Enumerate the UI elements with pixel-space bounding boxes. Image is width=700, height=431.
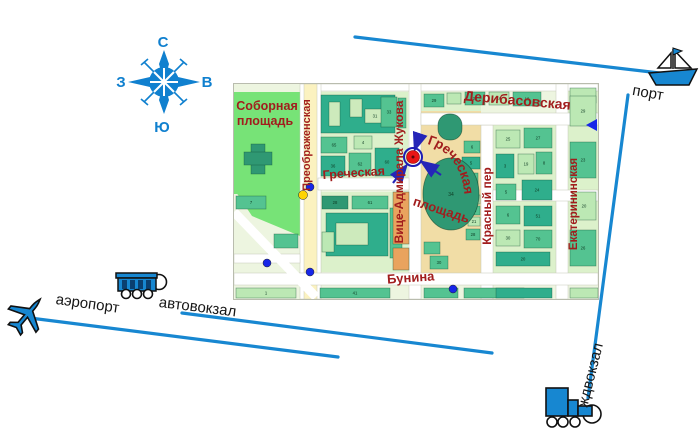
- transport-stop-dot: [449, 285, 457, 293]
- svg-text:27: 27: [536, 136, 541, 141]
- svg-text:28: 28: [333, 200, 338, 205]
- svg-text:30: 30: [437, 260, 442, 265]
- svg-text:29: 29: [581, 109, 586, 114]
- svg-text:23: 23: [581, 158, 586, 163]
- street-label: площадь: [237, 114, 294, 128]
- street-label: Красный пер: [480, 167, 494, 244]
- svg-text:34: 34: [448, 192, 454, 198]
- svg-text:61: 61: [368, 200, 373, 205]
- slide-canvas: С Ю З В 38313346536626028614216729221610…: [0, 0, 700, 431]
- compass-east-label: В: [202, 74, 213, 91]
- city-map: 3831334653662602861421672922161065441214…: [233, 83, 599, 300]
- svg-text:65: 65: [332, 143, 337, 148]
- transport-stop-dot: [263, 259, 271, 267]
- port-line: [355, 37, 668, 74]
- compass-south-label: Ю: [154, 119, 169, 136]
- plane-icon: [2, 292, 58, 338]
- svg-text:41: 41: [353, 291, 358, 296]
- airport-line: [30, 318, 338, 357]
- street-label: Соборная: [236, 99, 297, 113]
- svg-text:51: 51: [536, 214, 541, 219]
- svg-text:20: 20: [582, 204, 587, 209]
- ship-icon: [646, 46, 700, 90]
- svg-text:29: 29: [432, 98, 437, 103]
- svg-text:60: 60: [385, 160, 390, 165]
- location-marker: [404, 148, 422, 166]
- svg-text:30: 30: [506, 236, 511, 241]
- svg-text:28: 28: [471, 232, 476, 237]
- svg-text:24: 24: [535, 188, 540, 193]
- street-label: Екатерининская: [568, 158, 580, 250]
- svg-text:25: 25: [506, 137, 511, 142]
- street-label: Вице-Адмирала Жукова: [392, 100, 406, 243]
- transport-stop-dot: [299, 191, 308, 200]
- compass-north-label: С: [158, 34, 169, 51]
- svg-text:19: 19: [524, 162, 529, 167]
- svg-text:26: 26: [581, 246, 586, 251]
- svg-text:31: 31: [373, 114, 378, 119]
- compass-west-label: З: [116, 74, 125, 91]
- svg-text:21: 21: [472, 219, 477, 224]
- compass-rose-icon: С Ю З В: [112, 26, 222, 141]
- transport-stop-dot: [306, 268, 314, 276]
- svg-text:20: 20: [521, 257, 526, 262]
- street-label: Преображенская: [301, 99, 313, 191]
- svg-text:70: 70: [536, 237, 541, 242]
